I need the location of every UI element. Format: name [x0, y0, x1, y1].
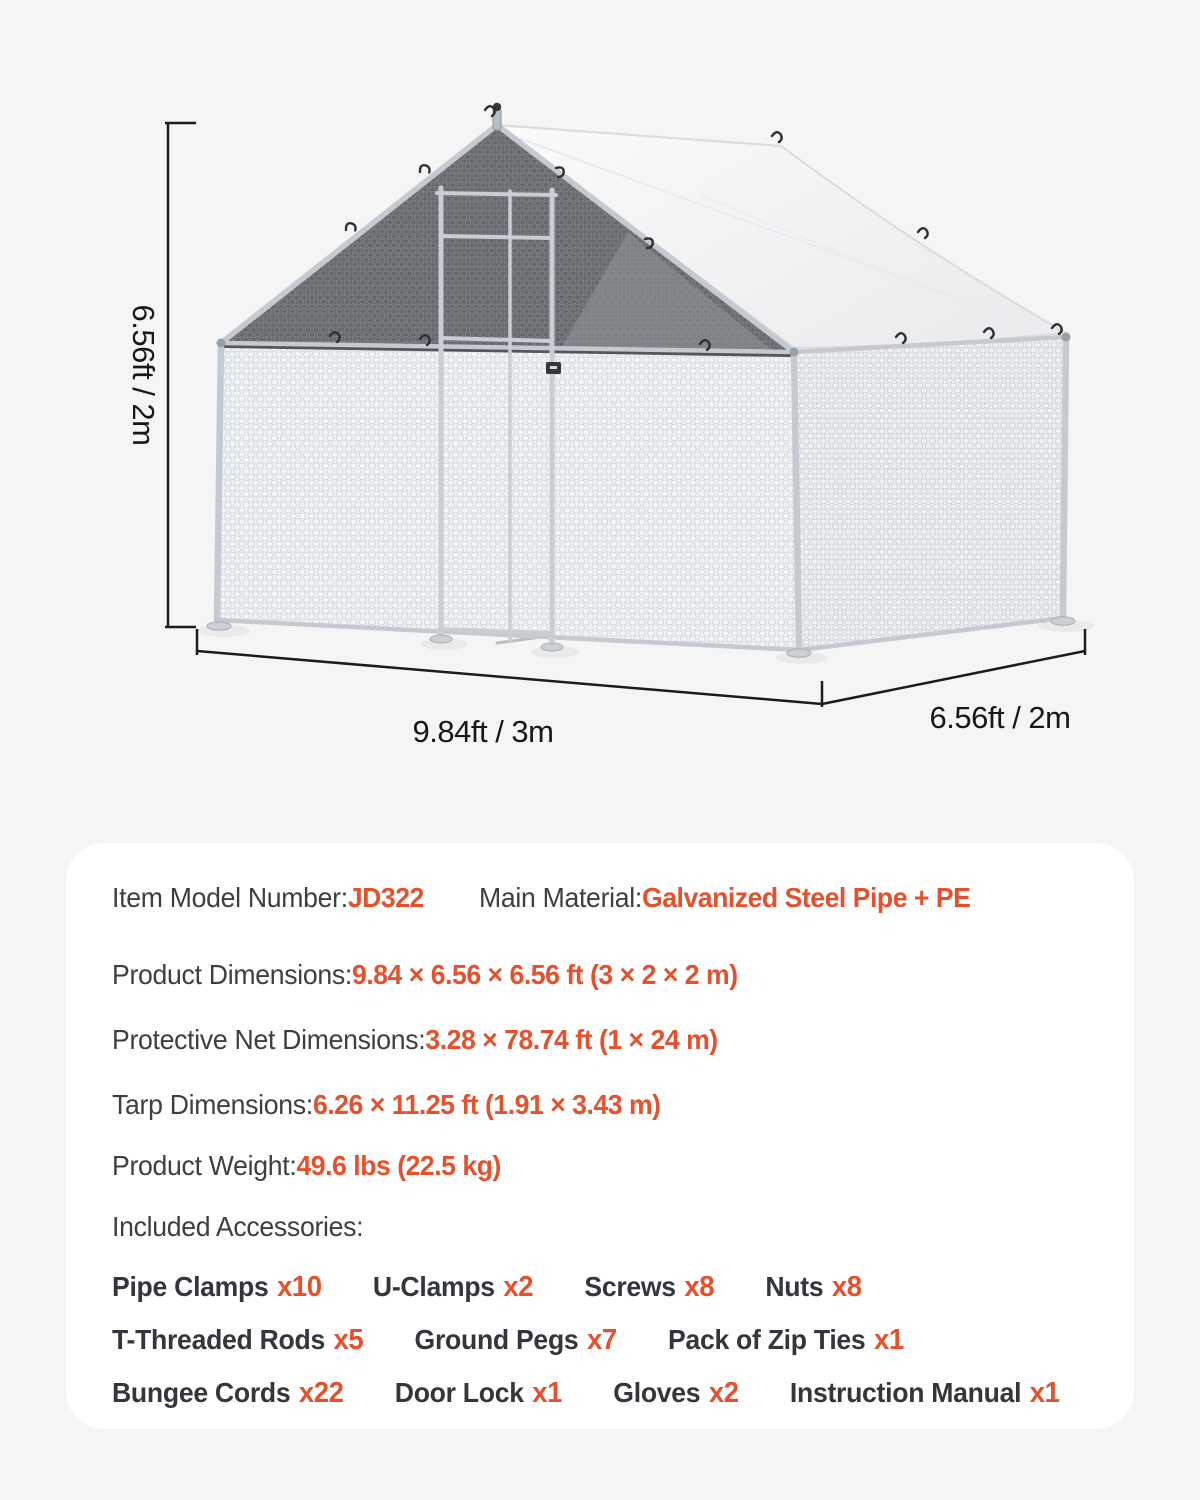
- included-accessories-title: Included Accessories:: [112, 1210, 1087, 1244]
- product-spec-page: 6.56ft / 2m 9.84ft / 3m 6.56ft / 2m Item…: [0, 0, 1200, 1500]
- width-dimension: 9.84ft / 3m 6.56ft / 2m: [197, 629, 1085, 749]
- spec-row-tarp-dimensions: Tarp Dimensions:6.26 × 11.25 ft (1.91 × …: [112, 1088, 1087, 1122]
- spec-row-net-dimensions: Protective Net Dimensions: 3.28 × 78.74 …: [112, 1023, 1087, 1057]
- accessory-item: Ground Pegsx7: [415, 1323, 617, 1357]
- accessory-item: U-Clampsx2: [373, 1270, 533, 1304]
- accessory-item: Pipe Clampsx10: [112, 1270, 322, 1304]
- spec-row-weight: Product Weight:49.6 lbs (22.5 kg): [112, 1149, 1087, 1183]
- accessories-row-1: Pipe Clampsx10 U-Clampsx2 Screwsx8 Nutsx…: [112, 1270, 1087, 1304]
- accessory-item: Pack of Zip Tiesx1: [668, 1323, 904, 1357]
- product-illustration: 6.56ft / 2m 9.84ft / 3m 6.56ft / 2m: [0, 0, 1200, 810]
- material-value: Galvanized Steel Pipe + PE: [642, 881, 970, 915]
- model-number-value: JD322: [348, 881, 424, 915]
- accessory-item: T-Threaded Rodsx5: [112, 1323, 363, 1357]
- net-dimensions-label: Protective Net Dimensions:: [112, 1023, 425, 1057]
- accessory-item: Glovesx2: [613, 1376, 738, 1410]
- width-label: 9.84ft / 3m: [413, 714, 554, 749]
- accessory-item: Nutsx8: [765, 1270, 861, 1304]
- accessories-row-2: T-Threaded Rodsx5 Ground Pegsx7 Pack of …: [112, 1323, 1087, 1357]
- specs-card: Item Model Number:JD322 Main Material:Ga…: [66, 843, 1134, 1429]
- height-dimension: 6.56ft / 2m: [126, 123, 196, 627]
- product-dimensions-label: Product Dimensions:: [112, 958, 352, 992]
- accessory-item: Door Lockx1: [395, 1376, 562, 1410]
- accessories-row-3: Bungee Cordsx22 Door Lockx1 Glovesx2 Ins…: [112, 1376, 1087, 1410]
- tarp-dimensions-value: 6.26 × 11.25 ft (1.91 × 3.43 m): [313, 1088, 661, 1122]
- tarp-dimensions-label: Tarp Dimensions:: [112, 1088, 313, 1122]
- front-wall-mesh: [217, 343, 799, 650]
- roof-apex-finial: [493, 103, 501, 130]
- spec-row-product-dimensions: Product Dimensions:9.84 × 6.56 × 6.56 ft…: [112, 958, 1087, 992]
- side-wall-mesh: [794, 337, 1066, 650]
- model-number-label: Item Model Number:: [112, 881, 348, 915]
- accessory-item: Bungee Cordsx22: [112, 1376, 343, 1410]
- net-dimensions-value: 3.28 × 78.74 ft (1 × 24 m): [425, 1023, 717, 1057]
- material-label: Main Material:: [479, 881, 642, 915]
- weight-label: Product Weight:: [112, 1149, 296, 1183]
- spec-row-model-material: Item Model Number:JD322 Main Material:Ga…: [112, 881, 1087, 915]
- product-dimensions-value: 9.84 × 6.56 × 6.56 ft (3 × 2 × 2 m): [352, 958, 738, 992]
- door-latch: [546, 362, 561, 374]
- depth-label: 6.56ft / 2m: [930, 700, 1071, 735]
- height-label: 6.56ft / 2m: [126, 305, 161, 446]
- accessory-item: Instruction Manualx1: [790, 1376, 1060, 1410]
- accessory-item: Screwsx8: [584, 1270, 714, 1304]
- weight-value: 49.6 lbs (22.5 kg): [296, 1149, 500, 1183]
